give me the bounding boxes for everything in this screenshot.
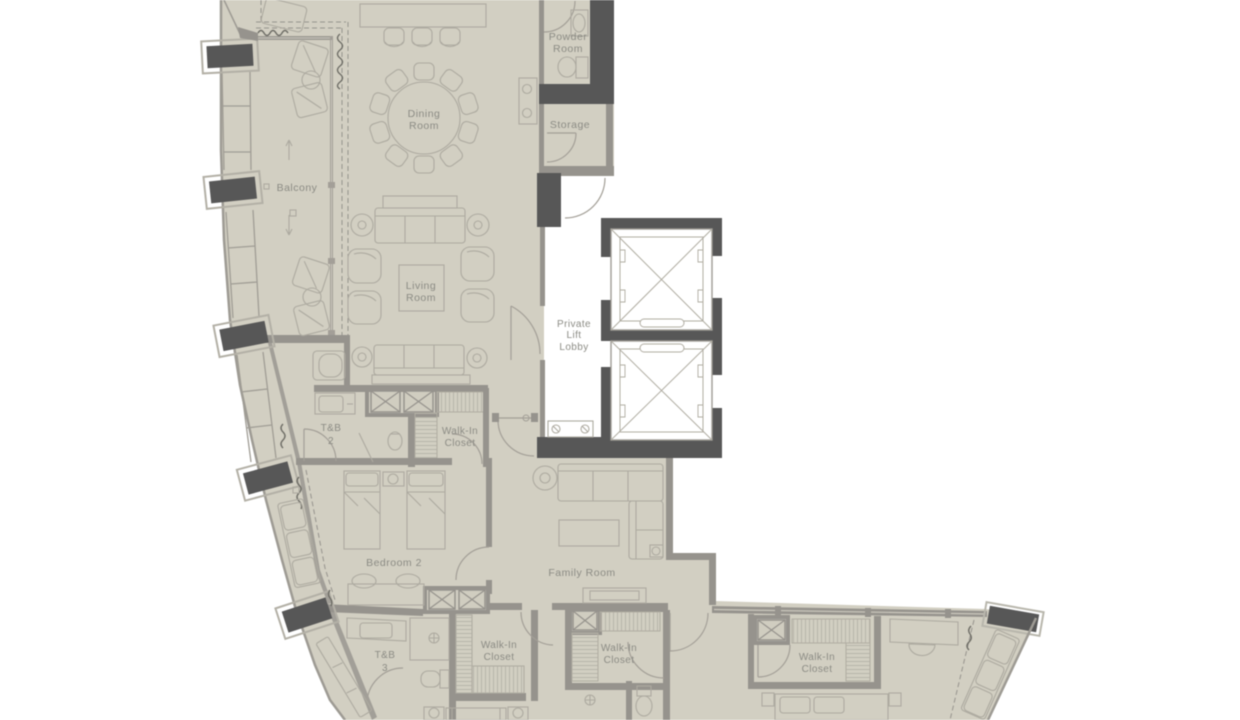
svg-text:T&B: T&B (375, 650, 396, 661)
svg-text:Powder: Powder (549, 31, 588, 43)
svg-text:Dining: Dining (408, 108, 441, 120)
svg-text:Closet: Closet (484, 652, 515, 663)
svg-text:Walk-In: Walk-In (442, 426, 478, 437)
svg-text:Living: Living (406, 280, 436, 292)
svg-text:Room: Room (406, 292, 436, 304)
svg-text:Walk-In: Walk-In (799, 652, 835, 663)
svg-text:Bedroom 2: Bedroom 2 (366, 557, 422, 569)
svg-text:Closet: Closet (802, 664, 833, 675)
svg-text:Closet: Closet (604, 655, 635, 666)
svg-text:Walk-In: Walk-In (481, 640, 517, 651)
svg-text:Room: Room (409, 120, 439, 132)
svg-text:Lift: Lift (567, 330, 582, 341)
svg-text:Closet: Closet (445, 438, 476, 449)
svg-text:Balcony: Balcony (277, 182, 318, 194)
svg-text:2: 2 (328, 436, 334, 447)
svg-text:Walk-In: Walk-In (601, 643, 637, 654)
svg-text:3: 3 (382, 663, 388, 674)
svg-text:Lobby: Lobby (559, 342, 588, 353)
svg-text:Family Room: Family Room (548, 567, 615, 579)
svg-text:Private: Private (557, 319, 591, 330)
svg-text:Storage: Storage (550, 119, 590, 131)
svg-text:T&B: T&B (321, 423, 342, 434)
svg-text:Room: Room (553, 43, 583, 55)
